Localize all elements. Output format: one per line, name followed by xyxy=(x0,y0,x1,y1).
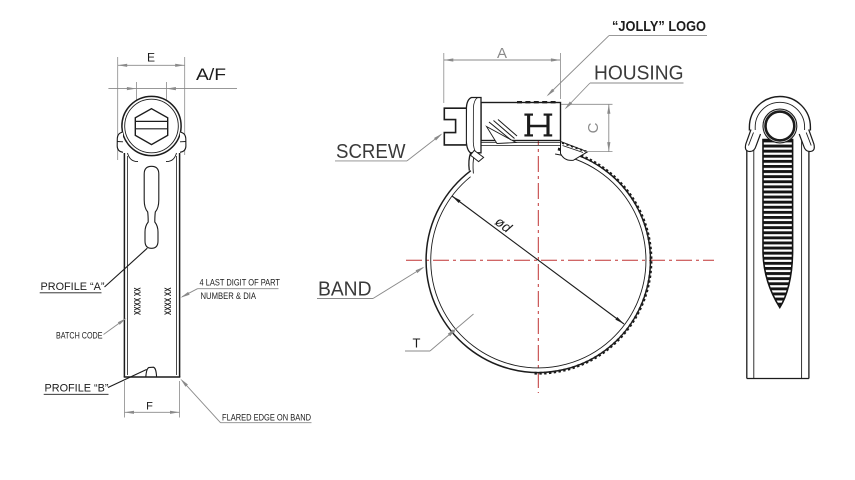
svg-text:PROFILE “B”: PROFILE “B” xyxy=(45,383,109,395)
svg-text:XXXX XX: XXXX XX xyxy=(133,287,144,315)
svg-text:BATCH CODE: BATCH CODE xyxy=(56,331,103,342)
svg-text:“JOLLY” LOGO: “JOLLY” LOGO xyxy=(612,18,706,35)
svg-text:A: A xyxy=(497,45,507,62)
svg-text:F: F xyxy=(146,401,153,413)
svg-text:XXXX XX: XXXX XX xyxy=(163,287,174,315)
svg-text:ød: ød xyxy=(492,213,516,236)
svg-text:NUMBER & DIA: NUMBER & DIA xyxy=(201,291,257,302)
svg-text:E: E xyxy=(147,51,155,65)
svg-text:HOUSING: HOUSING xyxy=(594,63,684,85)
svg-text:FLARED EDGE ON BAND: FLARED EDGE ON BAND xyxy=(222,413,311,424)
svg-text:4 LAST DIGIT OF PART: 4 LAST DIGIT OF PART xyxy=(200,278,281,289)
svg-text:C: C xyxy=(585,122,602,133)
svg-text:A/F: A/F xyxy=(196,65,226,84)
svg-text:BAND: BAND xyxy=(318,279,372,301)
svg-text:T: T xyxy=(413,336,421,351)
svg-text:PROFILE “A”: PROFILE “A” xyxy=(41,281,105,293)
svg-text:SCREW: SCREW xyxy=(336,141,406,163)
